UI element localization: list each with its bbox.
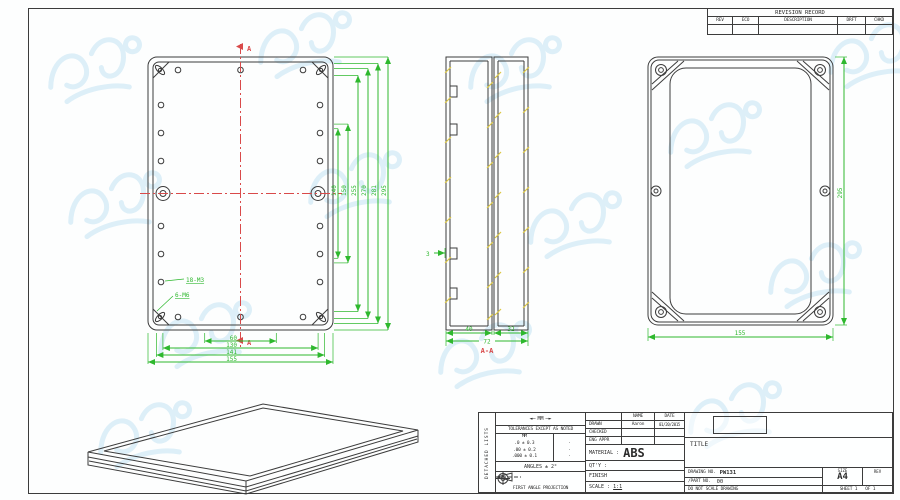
revision-empty-cell — [758, 25, 837, 34]
logo-box — [713, 416, 767, 434]
drawing-sheet: A A 140 150 255 270 281 — [0, 0, 900, 500]
sheet-number: SHEET 1 — [840, 487, 858, 492]
sheet-of: OF 1 — [865, 487, 875, 492]
revision-empty-cell — [708, 25, 732, 34]
projection-note: FIRST ANGLE PROJECTION — [496, 484, 586, 492]
size-value: A4 — [837, 473, 848, 482]
tolerance-table: MM .0 ± 0.3· .00 ± 0.2· .000 ± 0.1· — [496, 434, 586, 462]
revision-col-eco: ECO — [732, 17, 758, 25]
tolerance-row: .000 ± 0.1 — [496, 454, 553, 461]
do-not-scale-note: DO NOT SCALE DRAWING — [685, 486, 823, 492]
tolerance-header: MM — [496, 434, 553, 441]
tolerance-row: .0 ± 0.3 — [496, 441, 553, 448]
revision-empty-cell — [732, 25, 758, 34]
revision-table-title: REVISION RECORD — [708, 9, 892, 17]
scale-label: SCALE : — [589, 484, 610, 490]
tolerance-note: TOLERANCES EXCEPT AS NOTED — [496, 426, 586, 434]
qty-label: QT'Y : — [586, 461, 685, 471]
material-value: ABS — [623, 446, 645, 460]
date-header: DATE — [655, 413, 685, 421]
rev-label: REV — [874, 468, 881, 474]
revision-col-description: DESCRIPTION — [758, 17, 837, 25]
scale-value: 1:1 — [613, 484, 622, 490]
material-label: MATERIAL : — [589, 450, 619, 456]
drawn-name: Aaron — [622, 421, 655, 429]
units-arrows-icon: ◄─MM─► — [496, 413, 586, 426]
name-header: NAME — [622, 413, 655, 421]
revision-empty-cell — [837, 25, 865, 34]
finish-label: FINISH — [586, 471, 685, 482]
drawing-no-label: DRAWING NO. — [688, 470, 716, 475]
revision-empty-cell — [865, 25, 892, 34]
part-no-label: /PART NO. — [688, 479, 711, 484]
drawing-no-value: PW131 — [720, 470, 737, 476]
eng-appr-label: ENG APPR — [586, 437, 622, 445]
revision-col-chkd: CHKD — [865, 17, 892, 25]
part-no-value: 00 — [717, 479, 724, 485]
title-block: DETACHED LISTS ◄─MM─► TOLERANCES EXCEPT … — [478, 412, 893, 493]
revision-col-rev: REV — [708, 17, 732, 25]
title-block-side-label: DETACHED LISTS — [485, 427, 490, 479]
drawn-label: DRAWN — [586, 421, 622, 429]
checked-label: CHECKED — [586, 429, 622, 437]
title-label: TITLE — [690, 441, 708, 448]
angles-tolerance: ANGLES ± 2° — [496, 462, 586, 472]
drawn-date: 01/20/2015 — [655, 421, 685, 429]
revision-table: REVISION RECORD REV ECO DESCRIPTION DRFT… — [707, 8, 893, 35]
revision-col-drft: DRFT — [837, 17, 865, 25]
